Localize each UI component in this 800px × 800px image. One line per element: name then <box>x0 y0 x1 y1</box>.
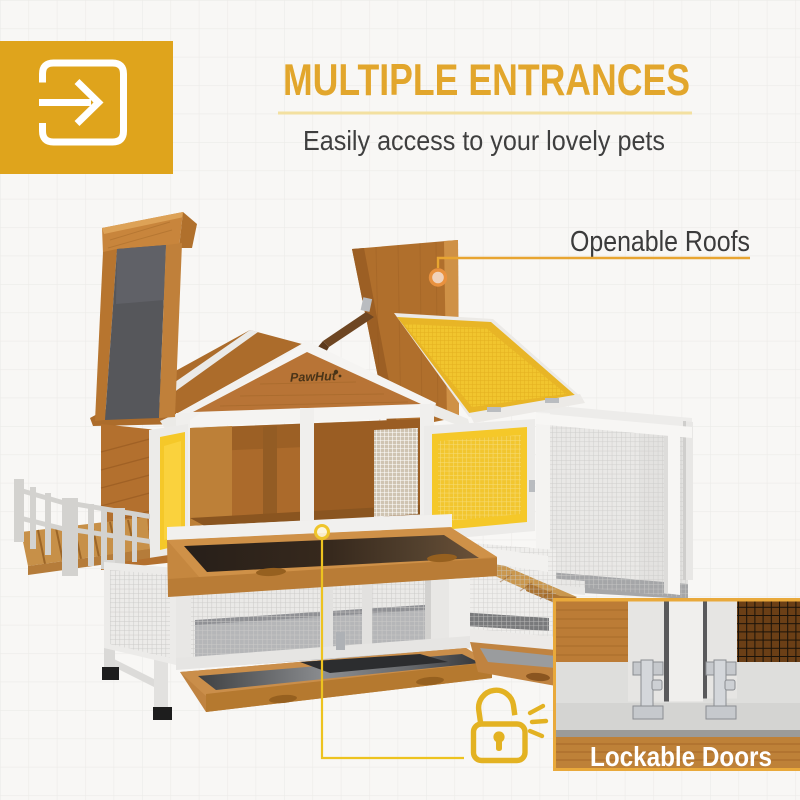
svg-text:MULTIPLE ENTRANCES: MULTIPLE ENTRANCES <box>283 56 690 105</box>
svg-text:Lockable Doors: Lockable Doors <box>590 741 772 772</box>
svg-text:Easily access to your lovely p: Easily access to your lovely pets <box>303 125 665 156</box>
svg-text:Openable Roofs: Openable Roofs <box>570 226 750 258</box>
svg-text:PawHut: PawHut <box>290 369 337 385</box>
